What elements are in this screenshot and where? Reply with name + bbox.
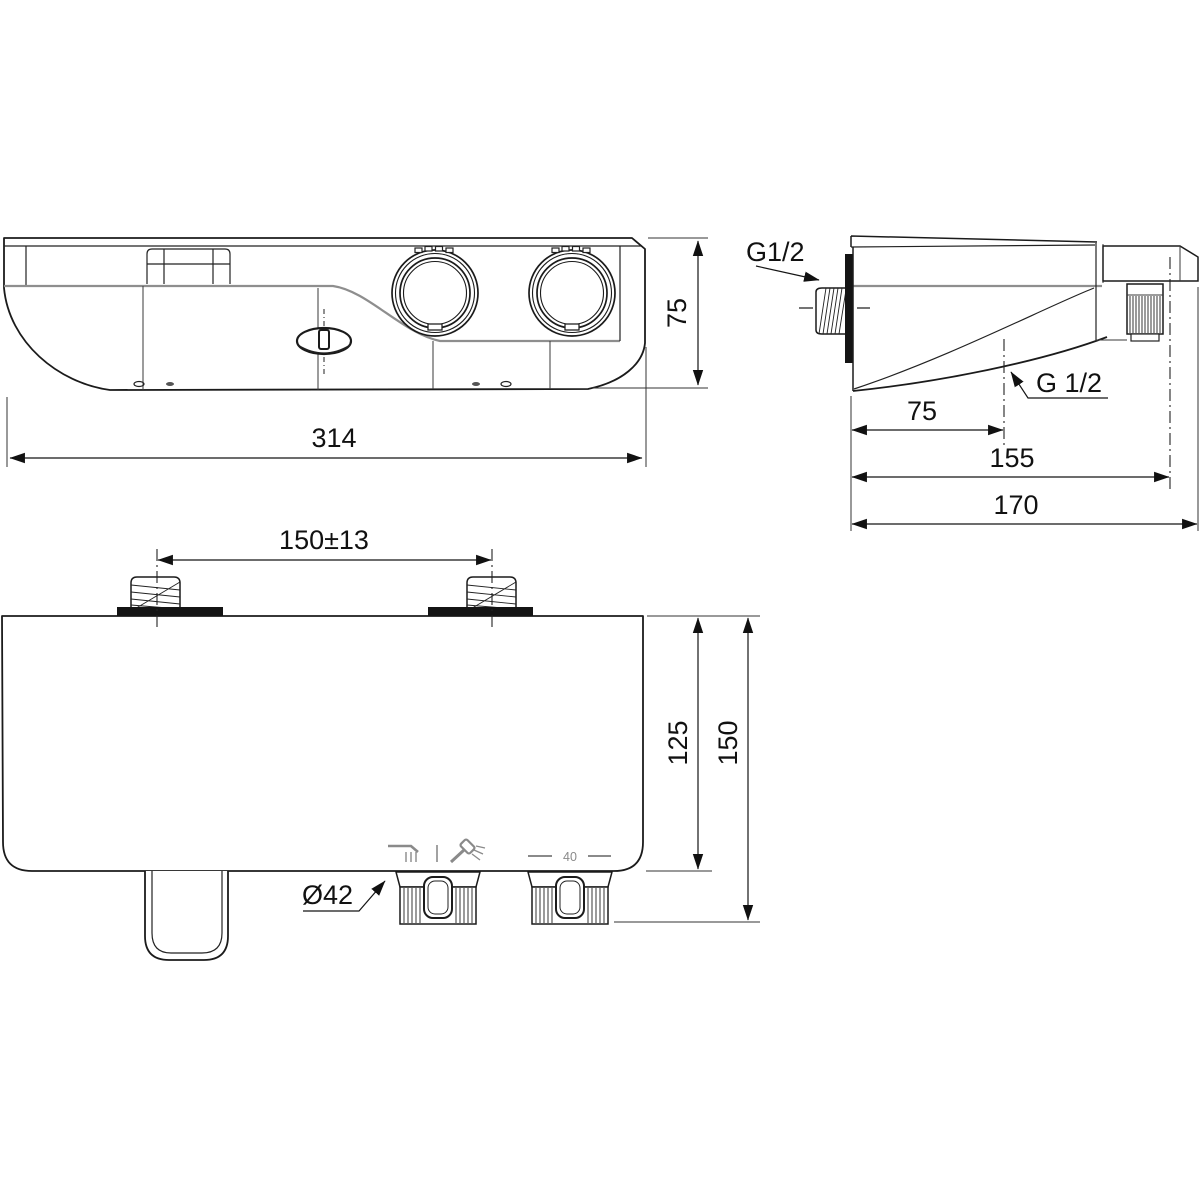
label-outlet-thread: G 1/2 [1036, 368, 1102, 398]
side-endcap-detail [1096, 244, 1127, 340]
dim-label-side-75: 75 [907, 396, 937, 426]
wall-plate [845, 254, 853, 363]
knob-bottom-notch [428, 324, 442, 330]
dim-label-side-170: 170 [993, 490, 1038, 520]
inlet-thread-hatch [819, 288, 846, 334]
label-inlet-thread: G1/2 [746, 237, 805, 267]
dim-inlet-spacing: 150±13 [158, 525, 491, 560]
dim-label-total-depth: 150 [713, 720, 743, 765]
plan-body-outline [2, 616, 643, 871]
dim-label-front-height: 75 [662, 298, 692, 328]
side-view: G1/2 G 1/2 75 155 170 [746, 236, 1198, 531]
plan-temp-knob [528, 872, 612, 924]
callout-inlet-thread: G1/2 [746, 237, 819, 280]
side-top-edge-inner [851, 245, 1095, 247]
front-view: 75 314 [4, 238, 708, 467]
dim-label-inlet-spacing: 150±13 [279, 525, 369, 555]
plan-spout [145, 871, 228, 960]
knob-bottom-notch [565, 324, 579, 330]
plan-view: 150±13 [2, 525, 760, 960]
callout-outlet-thread: G 1/2 [1011, 368, 1108, 398]
callout-knob-diameter: Ø42 [302, 880, 385, 911]
plan-inlet-left [117, 577, 223, 616]
wall-arm [1103, 246, 1198, 281]
dim-label-front-width: 314 [311, 423, 356, 453]
temp-scale-label: 40 [563, 850, 577, 864]
drawing-page: 75 314 G1/2 [0, 0, 1200, 1200]
dim-label-body-depth: 125 [663, 720, 693, 765]
label-knob-diameter: Ø42 [302, 880, 353, 910]
dim-label-side-155: 155 [989, 443, 1034, 473]
plan-flow-knob [396, 872, 480, 924]
plan-inlet-right [428, 577, 533, 616]
technical-drawing: 75 314 G1/2 [0, 0, 1200, 1200]
side-knurled-knob [1127, 284, 1163, 341]
